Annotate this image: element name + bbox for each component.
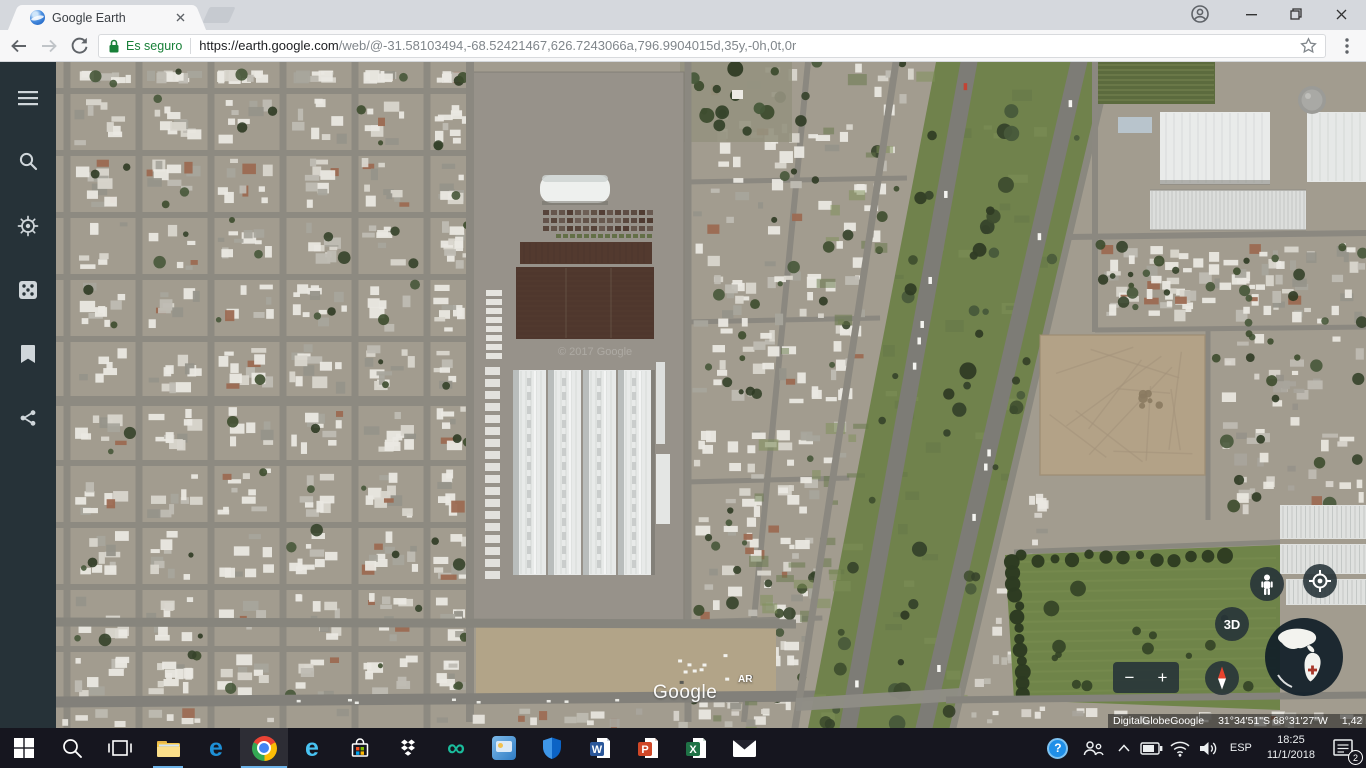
url-text: https://earth.google.com/web/@-31.581034… — [199, 38, 796, 53]
powerpoint-icon[interactable]: P — [624, 728, 672, 768]
search-icon[interactable] — [0, 141, 56, 181]
url-host: https://earth.google.com — [199, 38, 338, 53]
url-path: /web/@-31.58103494,-68.52421467,626.7243… — [339, 38, 797, 53]
excel-icon[interactable]: X — [672, 728, 720, 768]
address-bar[interactable]: Es seguro https://earth.google.com/web/@… — [98, 34, 1326, 58]
edge-icon[interactable]: e — [192, 728, 240, 768]
map-status-bar: DigitalGlobe Google 31°34'51"S 68°31'27"… — [1108, 714, 1366, 728]
country-code-label: AR — [738, 674, 752, 685]
lucky-dice-icon[interactable] — [0, 270, 56, 310]
task-view-icon[interactable] — [96, 728, 144, 768]
3d-button[interactable]: 3D — [1215, 607, 1249, 641]
saved-places-icon[interactable] — [0, 334, 56, 374]
google-earth-app: © 2017 Google Google AR 3D — [0, 62, 1366, 728]
tray-time: 18:25 — [1267, 733, 1315, 748]
action-center-icon[interactable]: 2 — [1324, 728, 1362, 768]
taskbar-search-icon[interactable] — [48, 728, 96, 768]
svg-text:P: P — [641, 744, 648, 756]
taskbar: e e ∞ — [0, 728, 1366, 768]
satellite-map[interactable] — [56, 62, 1366, 728]
tab-title: Google Earth — [52, 11, 166, 25]
back-icon[interactable] — [4, 32, 34, 60]
clock[interactable]: 18:25 11/1/2018 — [1258, 728, 1324, 768]
defender-icon[interactable] — [528, 728, 576, 768]
close-button[interactable] — [1323, 0, 1359, 28]
svg-text:W: W — [592, 744, 603, 756]
store-icon[interactable] — [336, 728, 384, 768]
zoom-control: − + — [1113, 662, 1179, 693]
share-icon[interactable] — [0, 398, 56, 438]
tab-strip: Google Earth — [0, 0, 1366, 30]
reload-icon[interactable] — [64, 32, 94, 60]
imagery-provider: DigitalGlobe — [1113, 715, 1170, 727]
google-earth-favicon — [30, 10, 45, 25]
voyager-icon[interactable] — [0, 206, 56, 246]
file-explorer-icon[interactable] — [144, 728, 192, 768]
wifi-icon[interactable] — [1166, 728, 1194, 768]
volume-icon[interactable] — [1194, 728, 1224, 768]
word-icon[interactable]: W — [576, 728, 624, 768]
mail-icon[interactable] — [720, 728, 768, 768]
screen: Google Earth Es segu — [0, 0, 1366, 768]
notification-badge: 2 — [1348, 750, 1363, 765]
browser-toolbar: Es seguro https://earth.google.com/web/@… — [0, 30, 1366, 62]
language-indicator[interactable]: ESP — [1224, 728, 1258, 768]
earth-sidebar — [0, 62, 56, 728]
new-tab-button[interactable] — [202, 7, 235, 23]
restore-button[interactable] — [1278, 0, 1314, 28]
globe-overview[interactable] — [1265, 618, 1343, 696]
lock-icon — [107, 38, 121, 54]
tab-close-icon[interactable] — [172, 10, 188, 26]
copyright-watermark: © 2017 Google — [558, 346, 632, 358]
imagery-provider-2: Google — [1170, 715, 1204, 727]
start-button[interactable] — [0, 728, 48, 768]
profile-icon[interactable] — [1182, 0, 1218, 28]
battery-icon[interactable] — [1138, 728, 1166, 768]
omnibox-divider — [190, 38, 191, 54]
dropbox-icon[interactable] — [384, 728, 432, 768]
forward-icon[interactable] — [34, 32, 64, 60]
browser-tab[interactable]: Google Earth — [22, 5, 192, 30]
hidden-icons-chevron[interactable] — [1110, 728, 1138, 768]
menu-dots-icon[interactable] — [1332, 32, 1362, 60]
compass-icon[interactable] — [1205, 661, 1239, 695]
media-app-icon[interactable] — [480, 728, 528, 768]
infinity-app-icon[interactable]: ∞ — [432, 728, 480, 768]
my-location-icon[interactable] — [1303, 564, 1337, 598]
star-icon[interactable] — [1300, 37, 1317, 54]
pegman-icon[interactable] — [1250, 567, 1284, 601]
taskbar-apps: e e ∞ — [0, 728, 768, 768]
zoom-out-button[interactable]: − — [1113, 662, 1146, 693]
google-logo-watermark: Google — [653, 682, 717, 704]
internet-explorer-icon[interactable]: e — [288, 728, 336, 768]
people-icon[interactable] — [1076, 728, 1110, 768]
map-viewport[interactable]: © 2017 Google Google AR 3D — [56, 62, 1366, 728]
menu-icon[interactable] — [0, 78, 56, 118]
minimize-button[interactable] — [1233, 0, 1269, 28]
security-label: Es seguro — [126, 39, 182, 53]
system-tray: ? ESP 18:25 11/1/201 — [1040, 728, 1366, 768]
coordinates-readout: 31°34'51"S 68°31'27"W — [1218, 715, 1328, 727]
svg-text:X: X — [689, 744, 697, 756]
range-readout: 1,42 km — [1342, 715, 1366, 727]
zoom-in-button[interactable]: + — [1146, 662, 1179, 693]
chrome-icon[interactable] — [240, 728, 288, 768]
tray-date: 11/1/2018 — [1267, 748, 1315, 763]
help-icon[interactable]: ? — [1040, 728, 1076, 768]
